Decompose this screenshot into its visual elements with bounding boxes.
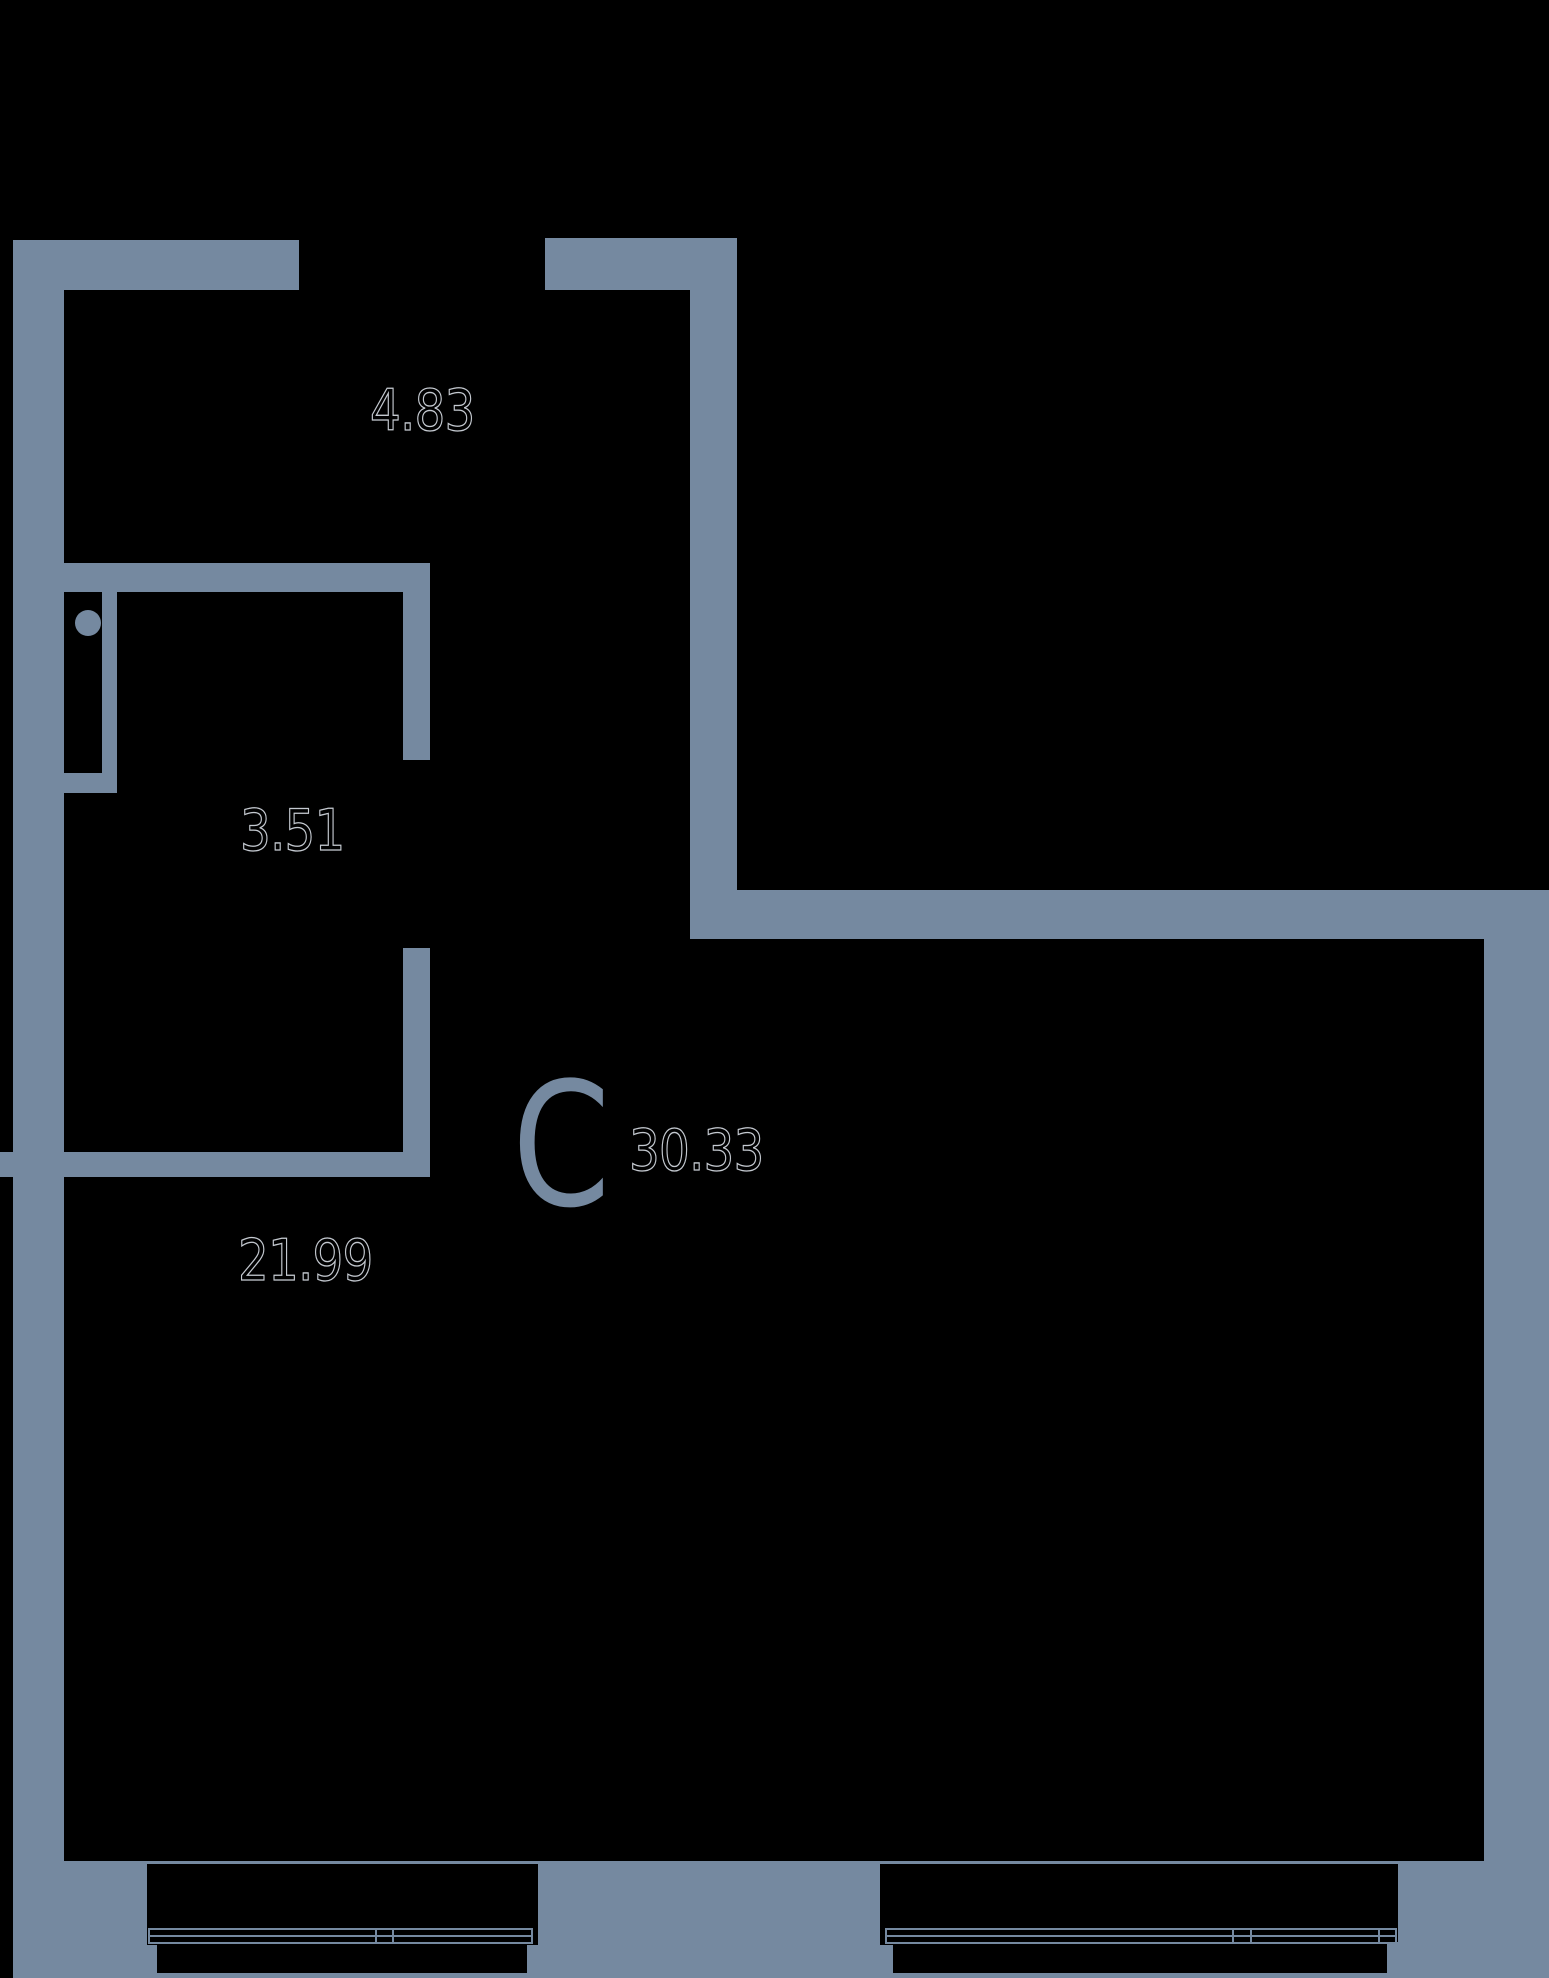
window-2-glazing-line [887,1935,1395,1937]
area-label-bathroom: 3.51 [240,803,344,860]
area-label-living-room: 21.99 [238,1233,372,1290]
wall-bathroom-top [63,563,430,592]
window-2-sash-divider [1232,1928,1234,1944]
window-2-sash-divider [1250,1928,1252,1944]
area-label-upper-room: 4.83 [370,383,474,440]
area-label-total: 30.33 [629,1123,763,1180]
wall-middle-vertical [690,240,737,890]
pier-bottom-right-corner [1398,1861,1549,1978]
pier-bottom-left-corner [13,1861,147,1978]
plan-bottom-edge-line [63,1973,1484,1978]
window-sill-line [143,1861,1398,1864]
wall-left [13,240,64,1861]
wall-bathroom-bottom [0,1152,430,1177]
wall-bathroom-right-lower [403,948,430,1177]
entry-door-leaf [102,592,117,773]
studio-unit-letter: С [512,1060,610,1232]
wall-right [1484,939,1549,1861]
window-1-sash-divider [375,1928,377,1944]
entry-door-base [63,773,117,793]
floor-plan: 4.83 3.51 21.99 30.33 С [0,0,1549,1978]
window-1 [148,1928,533,1944]
wall-upper-right-horizontal [690,890,1549,939]
window-2-sash-divider [1378,1928,1380,1944]
window-1-glazing-line [150,1935,531,1937]
wall-bathroom-right-upper [403,592,430,760]
window-2 [885,1928,1397,1944]
window-1-sash-divider [392,1928,394,1944]
door-handle-icon [75,610,101,636]
